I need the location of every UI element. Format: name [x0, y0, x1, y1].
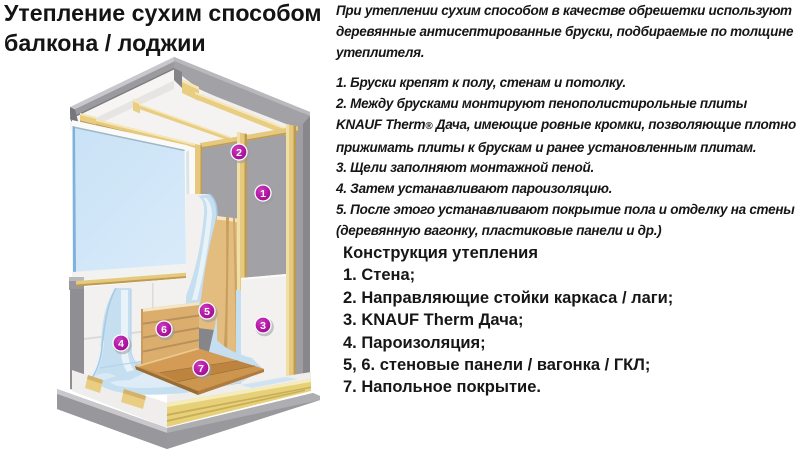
svg-text:7: 7 [198, 363, 204, 375]
svg-text:5: 5 [204, 306, 210, 318]
svg-text:3: 3 [260, 320, 266, 332]
svg-text:2: 2 [236, 147, 242, 159]
svg-text:4: 4 [118, 338, 124, 350]
svg-text:1: 1 [260, 188, 266, 200]
svg-text:6: 6 [161, 324, 167, 336]
